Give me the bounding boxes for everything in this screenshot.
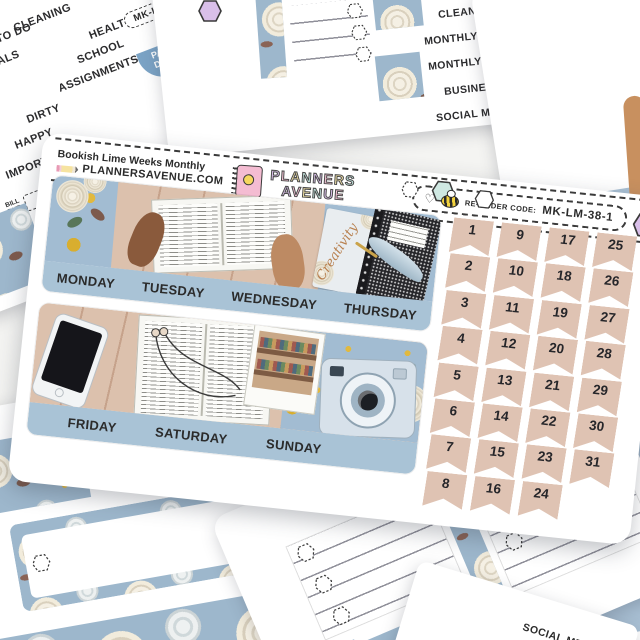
date-flag: 12 (485, 331, 530, 370)
camera-viewfinder (330, 366, 344, 376)
date-flag: 22 (525, 408, 570, 447)
bookshelf-photo (252, 331, 319, 396)
day-label-friday: FRIDAY (67, 415, 117, 435)
weekly-kit-column: Creativity MONDAY TUESDAY WEDNESDAY (22, 175, 441, 514)
date-flag: 10 (493, 259, 538, 298)
instax-camera (319, 358, 418, 439)
floral-washi-strip-vertical (255, 0, 287, 79)
sticker-kit-product-photo: CLEANING MONTHLY TO DO MONTHLY GOALS HEA… (0, 0, 640, 640)
date-flag: 8 (422, 471, 467, 510)
date-flag: 1 (449, 217, 494, 256)
date-flag: 16 (470, 476, 515, 515)
date-flag: 17 (544, 227, 589, 266)
book-page (158, 203, 219, 267)
date-flag: 4 (437, 326, 482, 365)
book-spine (220, 203, 224, 265)
day-label-saturday: SATURDAY (155, 424, 229, 446)
date-flag: 15 (474, 439, 519, 478)
bee-icon (440, 193, 459, 208)
hexagon-sticker-purple-icon (631, 212, 640, 239)
day-label-tuesday: TUESDAY (141, 279, 205, 301)
polaroid-photo (243, 324, 326, 415)
hexagon-checkbox-icon (31, 553, 53, 573)
hexagon-checkbox-icon (294, 541, 318, 564)
date-flag: 6 (430, 398, 475, 437)
hexagon-checkbox-icon (329, 604, 353, 627)
week-header-sticker-2: FRIDAY SATURDAY SUNDAY (26, 303, 428, 475)
date-flag: 27 (584, 305, 629, 344)
notebook-icon (235, 164, 263, 198)
date-flag: 29 (577, 377, 622, 416)
date-flag: 11 (489, 295, 534, 334)
date-flag: 7 (426, 434, 471, 473)
date-flag: 31 (569, 449, 614, 488)
date-flag: 28 (581, 341, 626, 380)
hexagon-checkbox-icon (354, 46, 372, 63)
date-flag: 9 (496, 222, 541, 261)
checklist-sticker-strip (288, 0, 373, 78)
leaf-icon (89, 206, 107, 224)
leaf-icon (66, 215, 84, 229)
date-flag: 21 (529, 372, 574, 411)
date-flag: 5 (434, 362, 479, 401)
brand-wordmark: PLANNERS AVENUE (269, 168, 356, 203)
date-flag: 30 (573, 413, 618, 452)
hexagon-sticker-outline-icon (400, 181, 420, 199)
date-flag: 25 (592, 232, 637, 271)
date-flag: 24 (518, 481, 563, 520)
reorder-code: MK-LM-38-1 (542, 205, 614, 224)
date-pennant-grid: 1 2 3 4 5 6 7 8 9 10 11 12 13 14 15 16 1… (423, 217, 636, 525)
floral-square-sticker (372, 0, 424, 30)
day-label-thursday: THURSDAY (343, 300, 418, 323)
day-label-monday: MONDAY (56, 270, 116, 291)
phone-home-button (54, 387, 65, 398)
hexagon-sticker-purple-icon (198, 0, 222, 22)
date-flag: 2 (445, 254, 490, 293)
date-flag: 20 (533, 336, 578, 375)
hexagon-sticker-white-icon (473, 189, 495, 209)
hexagon-checkbox-icon (346, 3, 364, 20)
earbuds-wire-icon (126, 323, 264, 422)
date-flag: 19 (537, 300, 582, 339)
date-flag: 13 (481, 367, 526, 406)
date-flag: 23 (521, 444, 566, 483)
sticker-sheet-main: Bookish Lime Weeks Monthly PLANNERSAVENU… (7, 132, 640, 545)
hexagon-checkbox-icon (350, 24, 368, 41)
floral-square-sticker (375, 52, 424, 101)
camera-flash (393, 368, 407, 379)
day-label-wednesday: WEDNESDAY (231, 288, 318, 312)
day-label-sunday: SUNDAY (265, 435, 322, 456)
date-flag: 18 (540, 264, 585, 303)
word-sticker: SOCIAL MEDIA (521, 621, 602, 640)
hexagon-checkbox-icon (312, 573, 336, 596)
camera-lens (339, 372, 397, 430)
pencil-icon (56, 164, 79, 173)
date-flag: 3 (441, 290, 486, 329)
sheet-body: Creativity MONDAY TUESDAY WEDNESDAY (22, 175, 640, 536)
date-flag: 14 (477, 403, 522, 442)
date-flag: 26 (588, 269, 633, 308)
